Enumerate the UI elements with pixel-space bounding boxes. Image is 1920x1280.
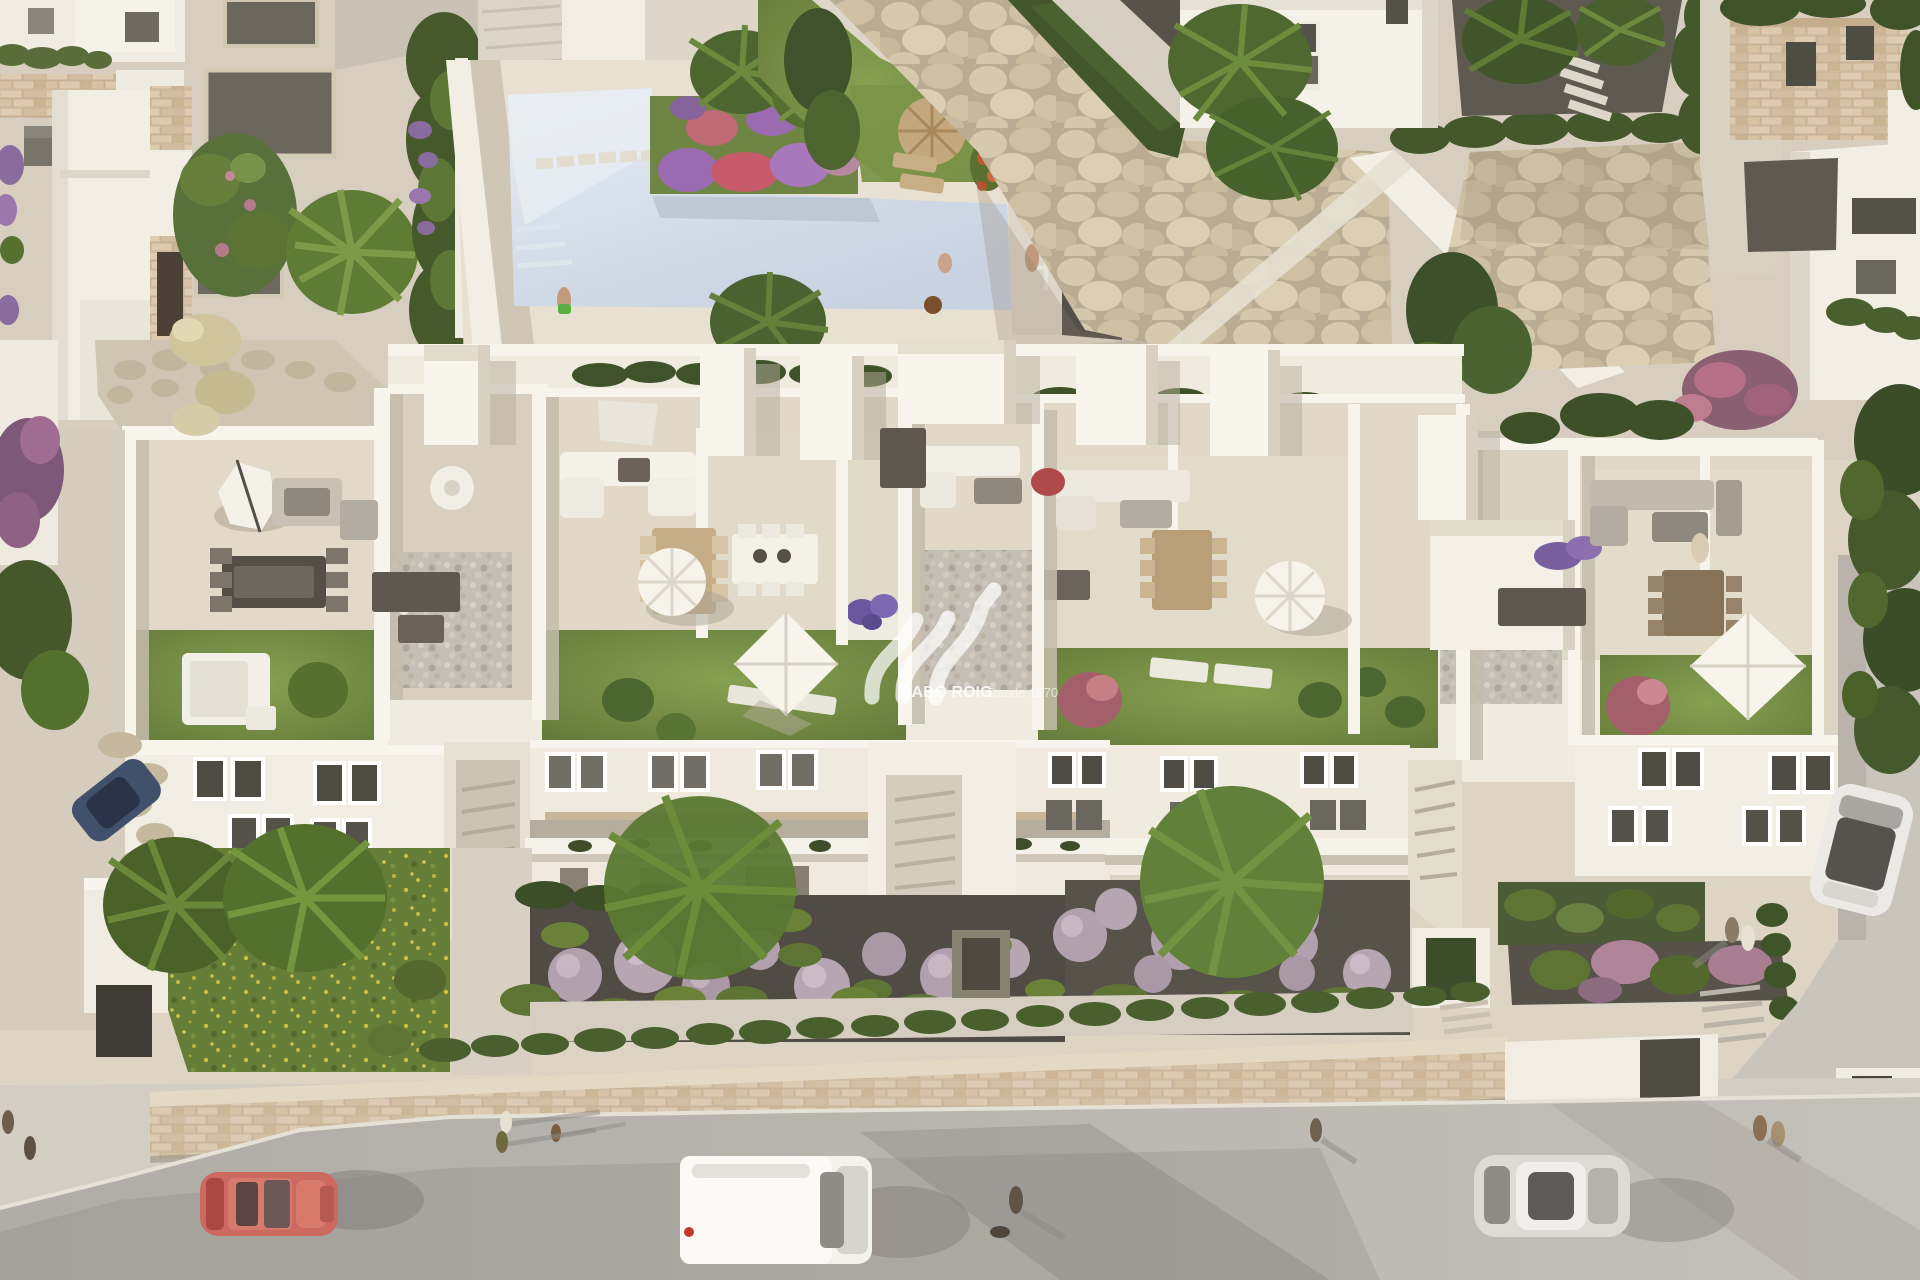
svg-text:Desde 1970: Desde 1970 bbox=[988, 685, 1058, 700]
svg-text:CABO ROIG: CABO ROIG bbox=[900, 684, 992, 701]
